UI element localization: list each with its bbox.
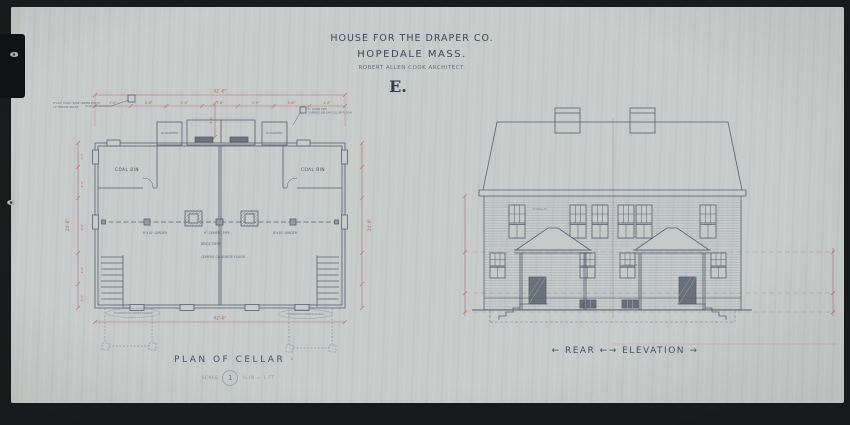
cement-pipe-note: 6" CEMENT PIPE xyxy=(204,231,230,235)
dim-left-overall: 24'-0" xyxy=(65,219,70,232)
dim-segment: 8'-6" xyxy=(288,101,296,105)
dim-overall-bottom: 42'-6" xyxy=(213,316,226,322)
coal-bin-label-left: COAL BIN xyxy=(115,167,139,172)
drain-note-line2: CARRIED BELOW CELLAR FLOOR xyxy=(308,111,352,115)
dim-left-segment: 4'-6" xyxy=(80,266,84,273)
floor-note: CEMENT CONCRETE FLOOR xyxy=(201,255,245,259)
plan-caption: PLAN OF CELLAR · xyxy=(160,355,310,365)
cellar-stairs-left xyxy=(101,255,123,307)
girder-note-left: 8"x10" GIRDER xyxy=(143,231,168,235)
no-basement-label-left: NO BASEMENT xyxy=(161,132,179,135)
girder-note-right: 8"x10" GIRDER xyxy=(273,231,298,235)
paper-edge-shadow xyxy=(0,34,25,98)
plan-dimension-labels: 42'-6" 4'-6" 8'-6" 5'-6" 7'-6" 5'-6" 8'-… xyxy=(65,89,372,322)
shingles-note-lower: SHINGLES xyxy=(622,263,637,267)
dim-segment: 5'-6" xyxy=(252,101,260,105)
dim-left-segment: 3'-6" xyxy=(80,152,84,159)
brick-piers-note: BRICK PIERS xyxy=(201,242,221,246)
punch-hole-top xyxy=(10,52,19,57)
dim-segment: 7'-6" xyxy=(216,101,224,105)
scale-stamp: SCALE 1 ¼ IN = 1 FT xyxy=(183,370,293,386)
cellar-stairs-right xyxy=(317,255,339,307)
plan-dimension-lines xyxy=(76,93,364,324)
dim-segment: 8'-6" xyxy=(145,101,153,105)
dim-left-segment: 8'-0" xyxy=(80,223,84,230)
rear-elevation-drawing: SHINGLES SHINGLES xyxy=(450,98,845,363)
title-company: HOUSE FOR THE DRAPER CO. xyxy=(330,33,494,44)
dim-segment: 4'-6" xyxy=(323,101,331,105)
dim-left-segment: 4'-6" xyxy=(80,180,84,187)
dim-overall-top: 42'-6" xyxy=(213,89,226,95)
dim-left-segment: 3'-6" xyxy=(80,294,84,301)
blueprint-photograph: HOUSE FOR THE DRAPER CO. HOPEDALE MASS. … xyxy=(0,0,850,425)
punch-hole-bottom xyxy=(7,200,16,205)
dim-right-overall: 24'-0" xyxy=(367,219,372,232)
no-basement-label-right: NO BASEMENT xyxy=(266,132,284,135)
elevation-caption: ← REAR ←→ ELEVATION → xyxy=(535,346,715,356)
coal-bin-label-right: COAL BIN xyxy=(301,167,325,172)
dim-segment: 5'-6" xyxy=(181,101,189,105)
title-location: HOPEDALE MASS. xyxy=(330,49,494,60)
cellar-plan-drawing: 42'-6" 4'-6" 8'-6" 5'-6" 7'-6" 5'-6" 8'-… xyxy=(45,85,390,400)
post-note-line2: 12" BELOW GRADE xyxy=(53,105,79,109)
scale-prefix: SCALE xyxy=(201,376,218,381)
piazza-note-right: FOUNDATION UNDER PIAZZA xyxy=(286,312,324,316)
sheet-number-stamp: 1 xyxy=(222,370,238,386)
scale-suffix: ¼ IN = 1 FT xyxy=(242,376,274,381)
title-architect: ROBERT ALLEN COOK ARCHITECT. xyxy=(330,65,494,71)
shingles-note-upper: SHINGLES xyxy=(532,207,547,211)
piazza-note-left: FOUNDATION UNDER PIAZZA xyxy=(114,311,152,315)
